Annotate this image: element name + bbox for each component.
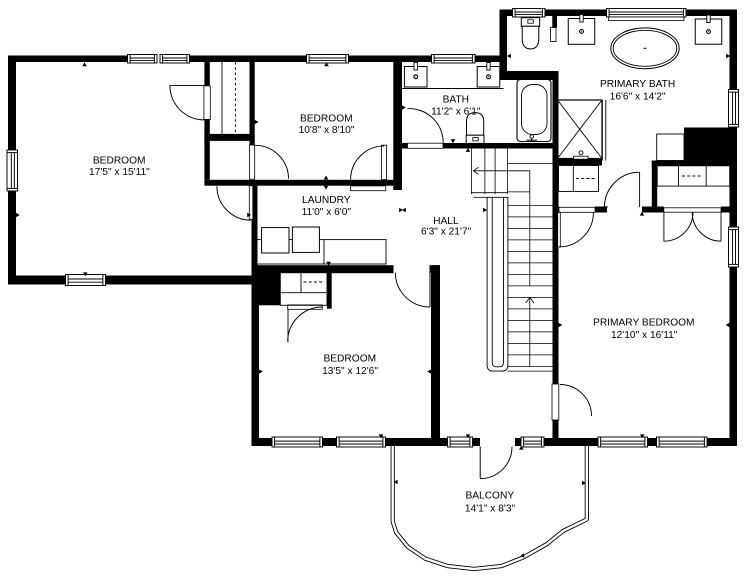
svg-text:17'5" x 15'11": 17'5" x 15'11"	[89, 167, 150, 178]
svg-text:HALL: HALL	[433, 216, 459, 227]
svg-text:BALCONY: BALCONY	[465, 490, 514, 501]
svg-text:PRIMARY BEDROOM: PRIMARY BEDROOM	[593, 317, 695, 328]
svg-text:11'0" x 6'0": 11'0" x 6'0"	[302, 207, 352, 218]
svg-text:6'3" x 21'7": 6'3" x 21'7"	[421, 227, 472, 238]
svg-text:14'1" x 8'3": 14'1" x 8'3"	[465, 503, 516, 514]
svg-text:LAUNDRY: LAUNDRY	[302, 195, 351, 206]
svg-text:BEDROOM: BEDROOM	[323, 354, 376, 365]
svg-text:13'5" x 12'6": 13'5" x 12'6"	[322, 366, 378, 377]
svg-text:BATH: BATH	[443, 95, 469, 106]
svg-text:BEDROOM: BEDROOM	[93, 156, 146, 167]
svg-text:BEDROOM: BEDROOM	[300, 114, 353, 125]
svg-text:11'2" x 6'1": 11'2" x 6'1"	[431, 106, 481, 117]
svg-text:PRIMARY BATH: PRIMARY BATH	[600, 79, 675, 90]
svg-text:10'8" x 8'10": 10'8" x 8'10"	[299, 125, 355, 136]
svg-text:12'10" x 16'11": 12'10" x 16'11"	[611, 330, 678, 341]
svg-text:16'6" x 14'2": 16'6" x 14'2"	[610, 92, 666, 103]
